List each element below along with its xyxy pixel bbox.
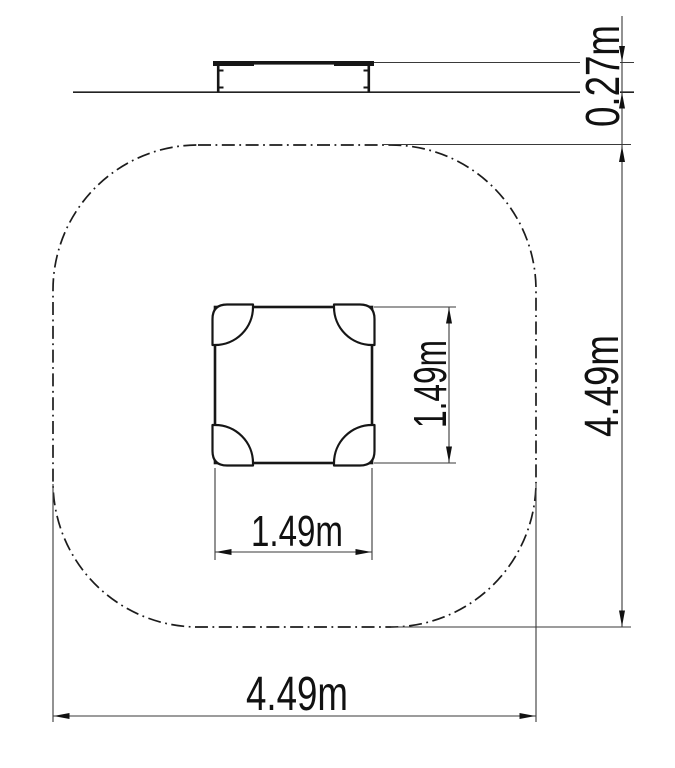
arrowhead-right bbox=[520, 713, 536, 719]
arrowhead-down bbox=[446, 447, 452, 463]
dimension-label-safety-width: 4.49m bbox=[246, 668, 348, 721]
arrowhead-up bbox=[619, 146, 625, 162]
arrowhead-left bbox=[216, 549, 232, 555]
side-elevation-view bbox=[73, 61, 634, 92]
dimension-label-platform-height: 0.27m bbox=[577, 25, 630, 127]
dimension-unit-depth: 1.49m bbox=[374, 307, 456, 463]
arrowhead-right bbox=[356, 549, 372, 555]
platform-rail-notch bbox=[254, 65, 334, 67]
dimension-label-unit-width: 1.49m bbox=[251, 507, 343, 556]
technical-drawing-page: 1.49m 1.49m 4.49m 4.49m 0.27m bbox=[0, 0, 675, 768]
dimension-label-unit-depth: 1.49m bbox=[404, 340, 456, 428]
technical-drawing-canvas: 1.49m 1.49m 4.49m 4.49m 0.27m bbox=[0, 0, 675, 768]
arrowhead-down bbox=[619, 611, 625, 627]
dimension-unit-width: 1.49m bbox=[215, 468, 372, 560]
arrowhead-up bbox=[446, 308, 452, 324]
dimension-label-safety-depth: 4.49m bbox=[576, 335, 629, 437]
dimension-platform-height: 0.27m bbox=[374, 24, 634, 128]
arrowhead-left bbox=[54, 713, 70, 719]
